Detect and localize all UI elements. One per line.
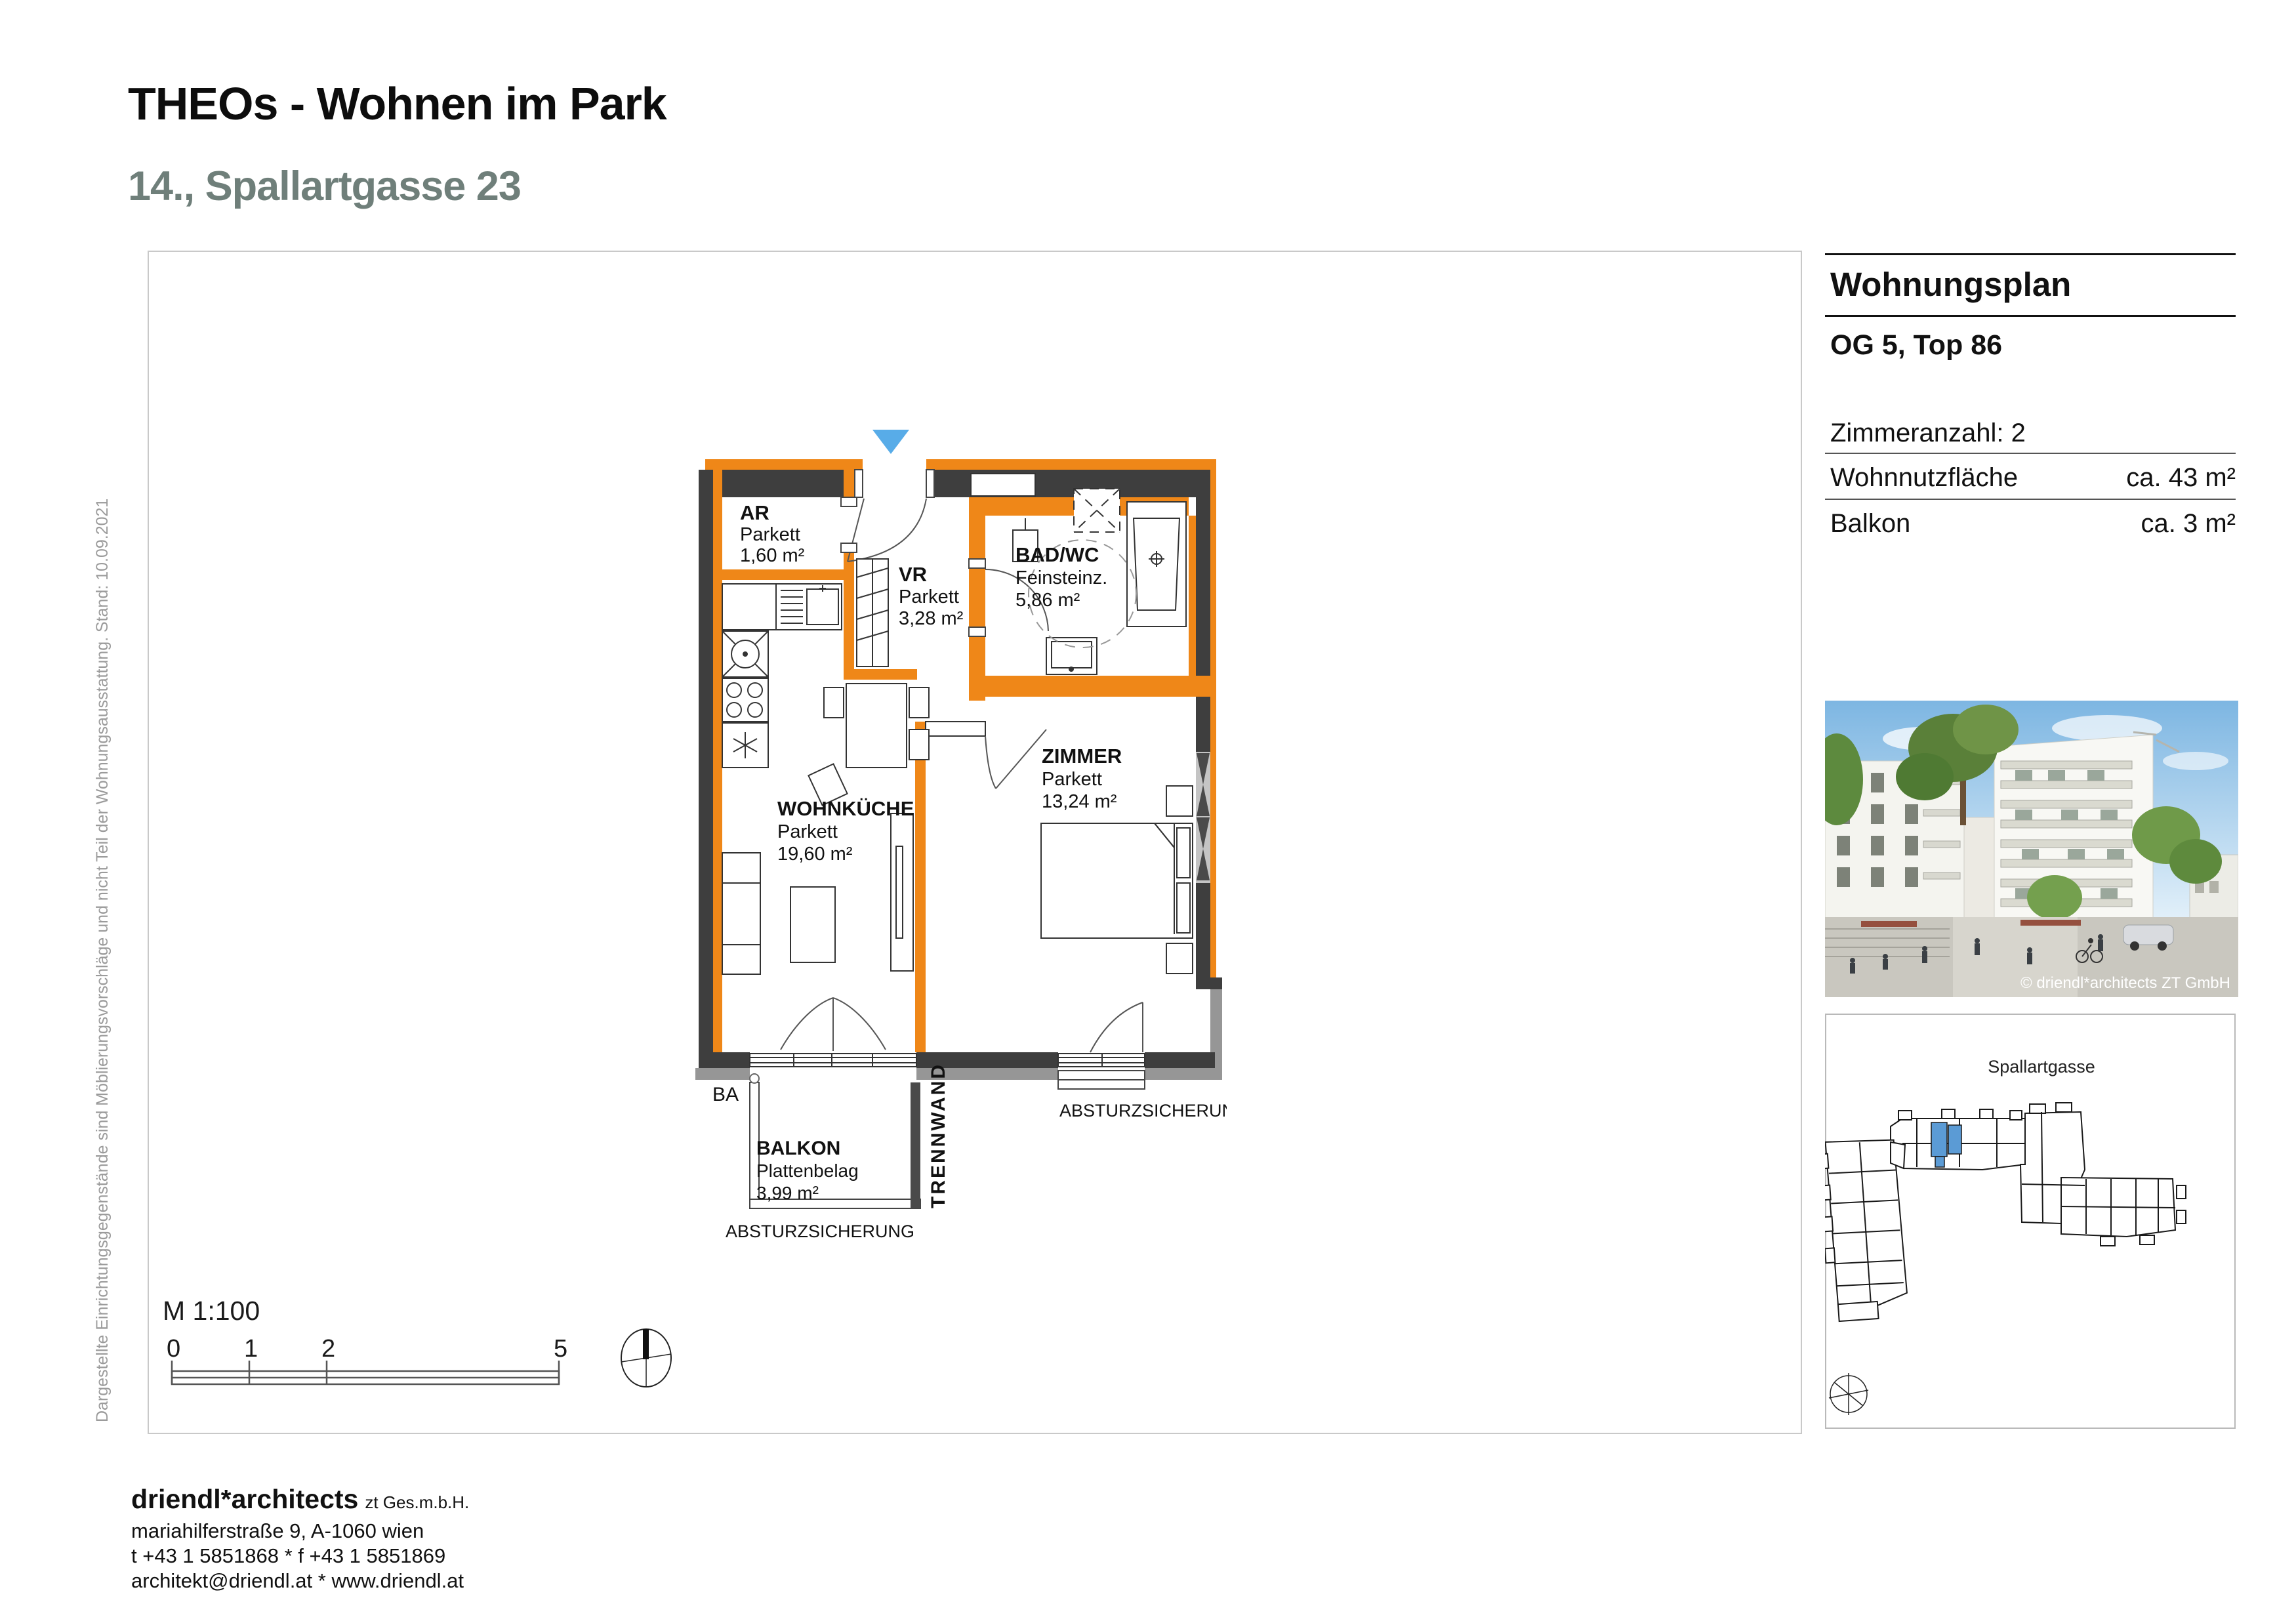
page-title: THEOs - Wohnen im Park [128,77,666,130]
building-footprint [1825,1103,2186,1322]
bed [1041,786,1193,974]
room-floor-balkon: Plattenbelag [756,1161,859,1181]
room-label-ar: AR [740,501,769,524]
dining-table [808,684,929,806]
area-row-value: ca. 3 m² [2141,509,2236,539]
stud-wall [926,722,985,736]
street-label: Spallartgasse [1988,1057,2095,1077]
pillow [1177,828,1190,878]
firm-address: mariahilferstraße 9, A-1060 wien [131,1519,424,1543]
furnishing-disclaimer: Dargestellte Einrichtungsgegenstände sin… [93,642,112,1422]
coffee-table [790,887,835,962]
room-label-wohnkueche: WOHNKÜCHE [777,797,914,820]
row-divider [1825,453,2236,454]
room-count: Zimmeranzahl: 2 [1830,419,2026,448]
trennwand-partition [911,1082,920,1208]
room-floor-ar: Parkett [740,524,800,545]
room-area-vr: 3,28 m² [899,608,964,629]
wardrobe [857,559,888,667]
area-row-living: Wohnnutzfläche ca. 43 m² [1830,463,2236,493]
room-floor-zimmer: Parkett [1042,769,1102,790]
room-floor-wohnkueche: Parkett [777,821,838,842]
firm-name-text: driendl*architects [131,1484,358,1514]
scale-bar: 0 1 2 5 [157,1338,604,1397]
room-area-zimmer: 13,24 m² [1042,791,1117,812]
firm-name: driendl*architectszt Ges.m.b.H. [131,1484,469,1515]
scale-tick-5: 5 [554,1338,567,1363]
north-compass-icon [610,1319,682,1397]
floor-plan: AR Parkett 1,60 m² VR Parkett 3,28 m² BA… [682,407,1227,1260]
room-label-balkon: BALKON [756,1138,840,1159]
firm-suffix: zt Ges.m.b.H. [365,1492,469,1512]
nightstand [1166,786,1193,816]
page: { "header": { "title": "THEOs - Wohnen i… [0,0,2296,1623]
washing-machine [1074,489,1120,532]
area-row-label: Wohnnutzfläche [1830,463,2018,493]
building-rendering-image: © driendl*architects ZT GmbH [1825,701,2238,997]
room-area-bad: 5,86 m² [1015,590,1080,611]
room-label-bad: BAD/WC [1015,543,1099,566]
area-row-balcony: Balkon ca. 3 m² [1830,509,2236,539]
unit-label: OG 5, Top 86 [1830,329,2002,361]
panel-divider [1825,315,2236,317]
balcony-access-label: BA [712,1084,739,1105]
photo-credit: © driendl*architects ZT GmbH [2020,974,2230,992]
room-label-vr: VR [899,563,927,586]
scale-tick-0: 0 [167,1338,180,1363]
siteplan: Spallartgasse [1825,1014,2236,1429]
room-floor-bad: Feinsteinz. [1015,567,1107,588]
firm-web[interactable]: architekt@driendl.at * www.driendl.at [131,1569,464,1593]
room-area-wohnkueche: 19,60 m² [777,844,853,865]
scale-tick-1: 1 [244,1338,258,1363]
room-area-ar: 1,60 m² [740,545,805,566]
area-row-value: ca. 43 m² [2126,463,2236,493]
room-area-balkon: 3,99 m² [756,1183,819,1203]
panel-heading: Wohnungsplan [1830,265,2071,304]
room-label-zimmer: ZIMMER [1042,745,1122,768]
firm-phone: t +43 1 5851868 * f +43 1 5851869 [131,1544,445,1568]
railing-label-room: ABSTURZSICHERUNG [1059,1101,1227,1120]
railing-label-balcony: ABSTURZSICHERUNG [726,1222,914,1241]
room-floor-vr: Parkett [899,586,959,607]
entrance-arrow-icon [872,430,909,454]
scale-tick-2: 2 [321,1338,335,1363]
nightstand [1166,943,1193,974]
scale-label: M 1:100 [163,1296,260,1326]
partition-label: TRENNWAND [928,1063,949,1208]
sink [807,589,838,625]
row-divider2 [1825,499,2236,500]
panel-divider-top [1825,253,2236,255]
area-row-label: Balkon [1830,509,1910,539]
siteplan-compass-icon [1829,1373,1868,1415]
bedroom-side-window [1196,752,1210,883]
pillow [1177,883,1190,933]
page-subtitle: 14., Spallartgasse 23 [128,163,521,210]
kitchen-fixtures [722,584,842,768]
